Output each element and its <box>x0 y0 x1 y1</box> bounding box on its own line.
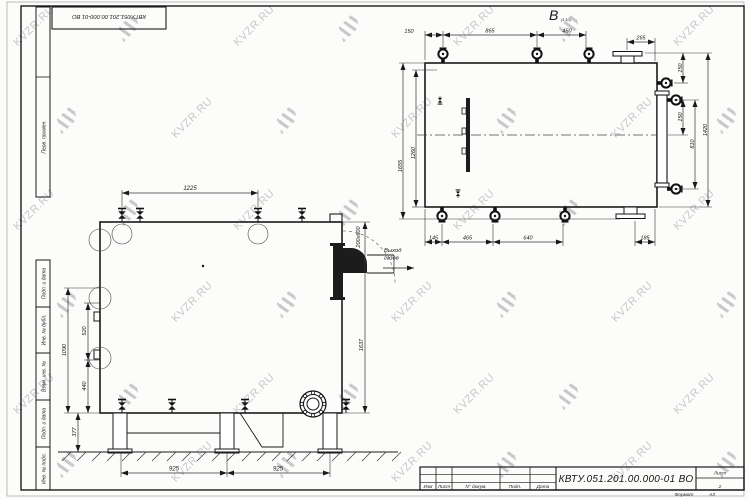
gas-outlet-duct <box>330 231 395 300</box>
dim-440: 440 <box>82 380 88 390</box>
dim-465: 465 <box>463 236 473 242</box>
frame-label-inv-podl: Инв. № подл. <box>42 453 48 484</box>
dim-150-right-b: 150 <box>678 111 684 121</box>
valve-icon <box>438 96 443 104</box>
frame-border <box>21 6 744 490</box>
top-view: В (1:10) <box>398 7 712 246</box>
valve-icon <box>168 400 176 414</box>
frame-label-inv-dubl: Инв. № дубл. <box>42 315 48 346</box>
valve-icon <box>241 400 249 414</box>
dim-865: 865 <box>485 29 495 35</box>
dim-150-top: 150 <box>404 29 414 35</box>
frame-label-vzam-inv: Взам. инв. № <box>42 360 48 392</box>
frame-label-perv-primen: Перв. примен. <box>42 120 48 153</box>
dim-1655: 1655 <box>398 159 404 172</box>
valve-icon <box>584 48 593 63</box>
dim-1225: 1225 <box>183 186 197 192</box>
dim-265: 265 <box>635 36 646 42</box>
dim-1260: 1260 <box>411 146 417 159</box>
top-stamp-doc-number: КВТУ.051.201.00.000-01 ВО <box>72 13 146 19</box>
tb-col-podp: Подп. <box>509 484 522 490</box>
valve-icon <box>136 209 144 223</box>
dim-185: 185 <box>640 236 650 242</box>
tb-col-dokum: N° докум. <box>465 484 486 490</box>
valve-icon <box>657 78 672 87</box>
tb-col-list: Лист <box>437 484 450 490</box>
valve-icon <box>456 190 461 198</box>
boiler-body-front <box>100 222 342 413</box>
dim-1090: 1090 <box>62 343 68 356</box>
drawing-canvas: КВТУ.051.201.00.000-01 ВО Перв. примен. … <box>0 0 750 500</box>
dim-377: 377 <box>72 426 78 436</box>
valve-icon <box>560 207 569 222</box>
view-scale: (1:10) <box>561 18 572 22</box>
valve-icon <box>118 209 126 223</box>
valve-icon <box>438 48 447 63</box>
front-view: Выход газов 200х600 1225 925 925 52 <box>58 186 414 477</box>
doc-number: КВТУ.051.201.00.000-01 ВО <box>559 474 694 485</box>
dim-640: 640 <box>523 236 533 242</box>
valve-icon <box>118 400 126 414</box>
dim-1420: 1420 <box>703 123 709 136</box>
bottom-nozzle-icon <box>616 207 645 219</box>
dim-150-right-a: 150 <box>678 62 684 72</box>
dim-810: 810 <box>690 138 696 148</box>
dim-1637: 1637 <box>359 338 365 351</box>
right-header-column <box>655 91 669 187</box>
dim-925-right: 925 <box>273 467 284 473</box>
tb-col-data: Дата <box>536 484 550 490</box>
view-label: В <box>549 7 558 23</box>
dim-145: 145 <box>429 236 439 242</box>
sheet-number: 2 <box>718 484 722 490</box>
frame-label-podp-data-2: Подп. и дата <box>42 408 48 440</box>
format-value: А3 <box>708 492 715 498</box>
burner-flange-icon <box>300 391 326 417</box>
top-nozzle-icon <box>613 52 642 64</box>
outlet-note-line1: Выход <box>384 248 402 254</box>
tb-col-izm: Изм <box>424 484 434 490</box>
dim-925-left: 925 <box>169 467 180 473</box>
support-frame <box>58 413 401 461</box>
valve-icon <box>490 207 499 222</box>
valve-icon <box>532 48 541 63</box>
valve-icon <box>437 207 446 222</box>
outlet-note-line2: газов <box>384 256 399 262</box>
valve-icon <box>342 400 350 414</box>
title-block: Изм Лист N° докум. Подп. Дата КВТУ.051.2… <box>420 467 744 498</box>
dim-450: 450 <box>562 29 572 35</box>
sheet-label: Лист <box>713 471 726 477</box>
frame-label-podp-data-1: Подп. и дата <box>42 268 48 300</box>
drawing-sheet: KVZR.RUKVZR.RUKVZR.RUKVZR.RUKVZR.RUKVZR.… <box>0 0 750 500</box>
valve-icon <box>298 209 306 223</box>
dim-520: 520 <box>82 325 88 335</box>
outlet-section-dim: 200х600 <box>356 226 362 249</box>
format-label: Формат <box>674 492 693 498</box>
valve-icon <box>254 209 262 223</box>
